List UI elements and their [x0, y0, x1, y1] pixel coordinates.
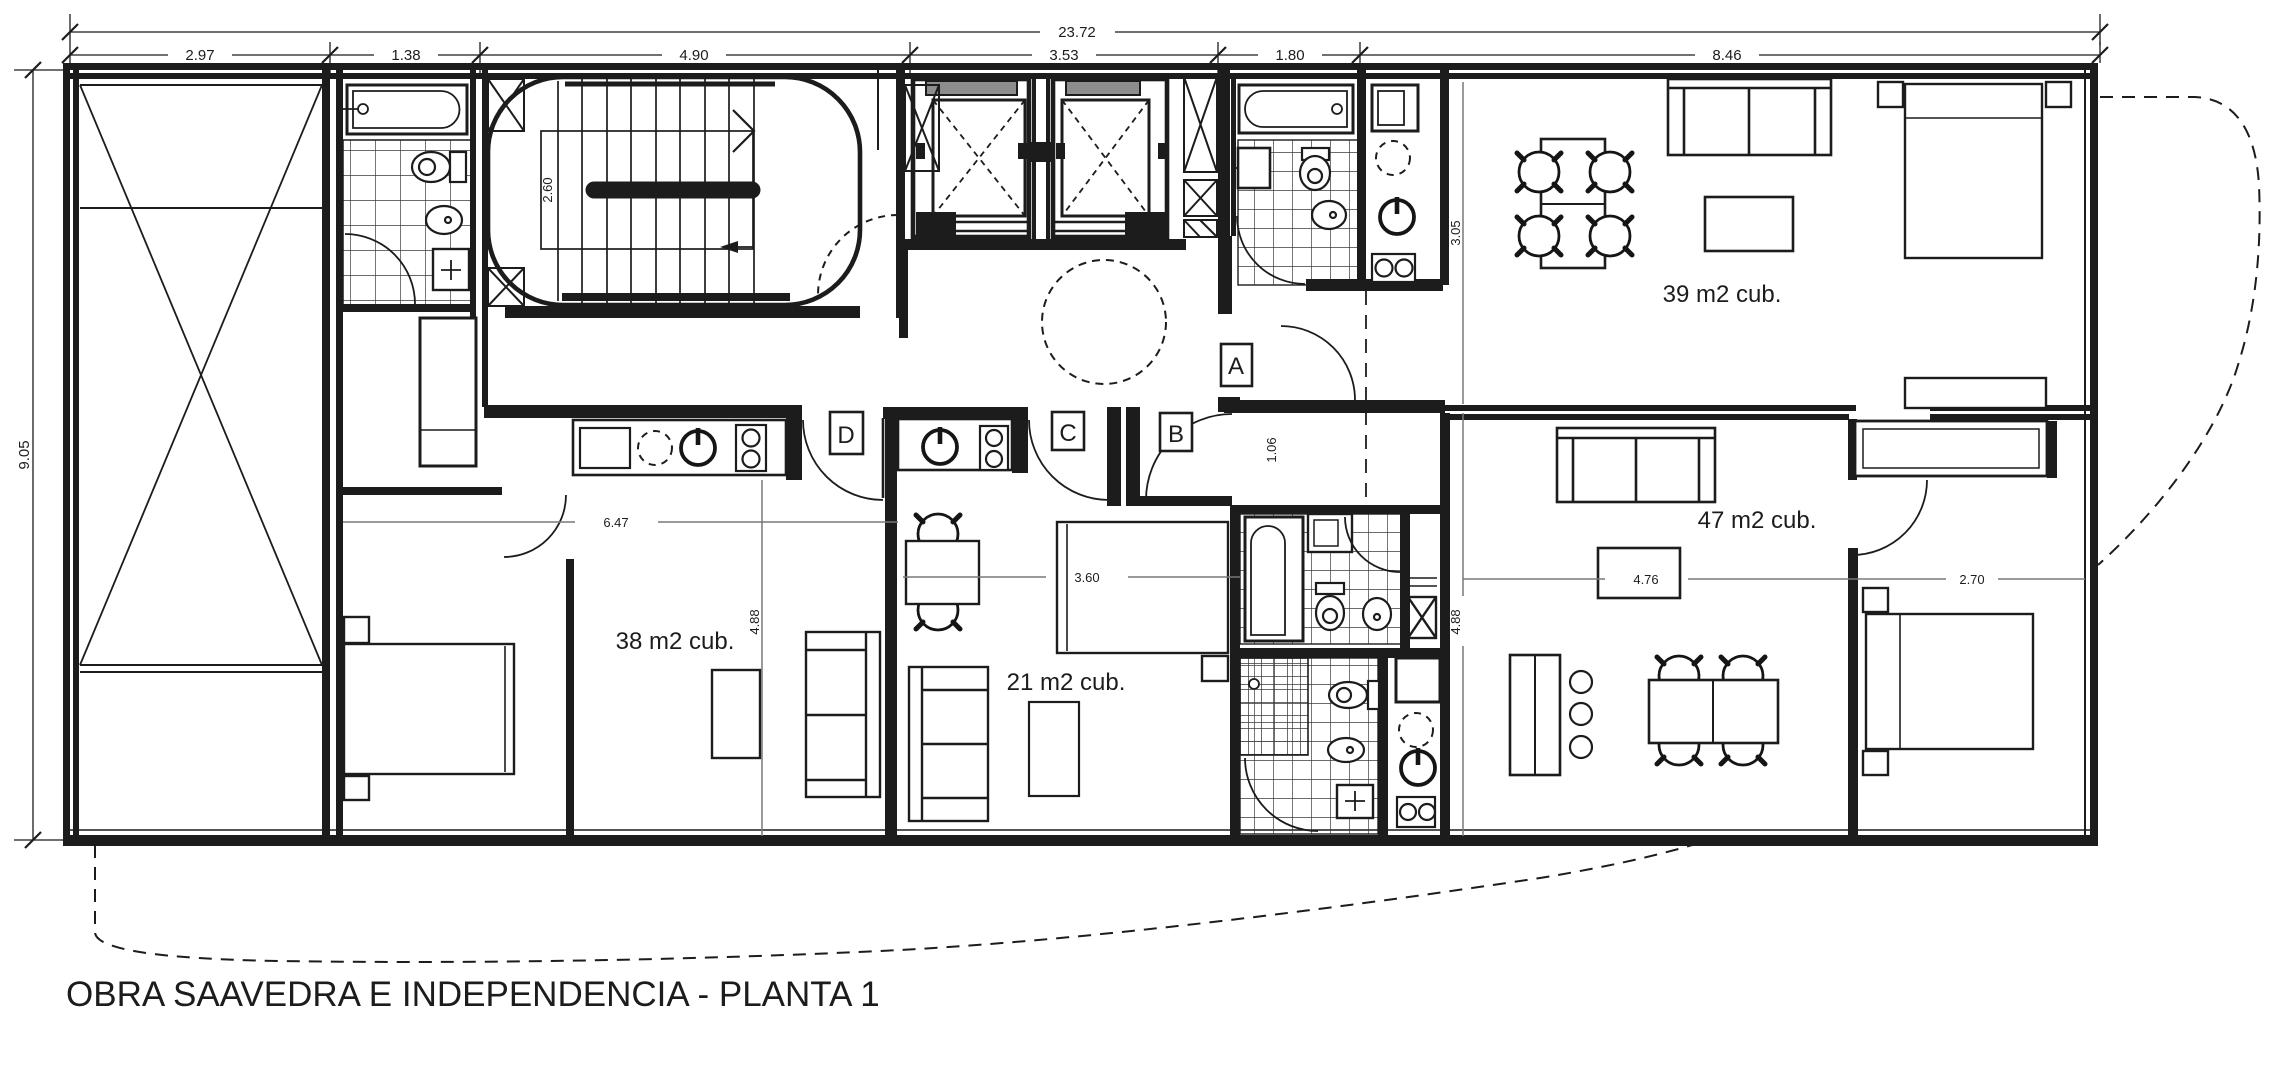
- svg-text:1.06: 1.06: [1264, 437, 1279, 462]
- svg-text:1.38: 1.38: [391, 47, 420, 64]
- svg-text:2.60: 2.60: [540, 177, 555, 202]
- svg-text:4.90: 4.90: [679, 47, 708, 64]
- svg-text:21 m2 cub.: 21 m2 cub.: [1007, 669, 1126, 696]
- svg-text:9.05: 9.05: [16, 440, 33, 469]
- svg-text:D: D: [837, 422, 854, 449]
- svg-text:OBRA SAAVEDRA E INDEPENDENCIA: OBRA SAAVEDRA E INDEPENDENCIA - PLANTA 1: [66, 975, 880, 1014]
- svg-text:38 m2 cub.: 38 m2 cub.: [616, 628, 735, 655]
- svg-text:3.05: 3.05: [1448, 220, 1463, 245]
- svg-text:B: B: [1168, 421, 1184, 448]
- svg-text:3.53: 3.53: [1049, 47, 1078, 64]
- svg-text:2.70: 2.70: [1959, 572, 1984, 587]
- svg-text:4.88: 4.88: [1448, 609, 1463, 634]
- svg-text:4.76: 4.76: [1633, 572, 1658, 587]
- svg-text:4.88: 4.88: [747, 609, 762, 634]
- svg-text:6.47: 6.47: [603, 515, 628, 530]
- svg-text:8.46: 8.46: [1712, 47, 1741, 64]
- svg-text:47 m2 cub.: 47 m2 cub.: [1698, 507, 1817, 534]
- svg-text:23.72: 23.72: [1058, 24, 1096, 41]
- svg-text:3.60: 3.60: [1074, 570, 1099, 585]
- svg-text:C: C: [1059, 420, 1076, 447]
- svg-text:39 m2 cub.: 39 m2 cub.: [1663, 281, 1782, 308]
- svg-text:1.80: 1.80: [1275, 47, 1304, 64]
- svg-text:2.97: 2.97: [185, 47, 214, 64]
- svg-text:A: A: [1228, 353, 1244, 380]
